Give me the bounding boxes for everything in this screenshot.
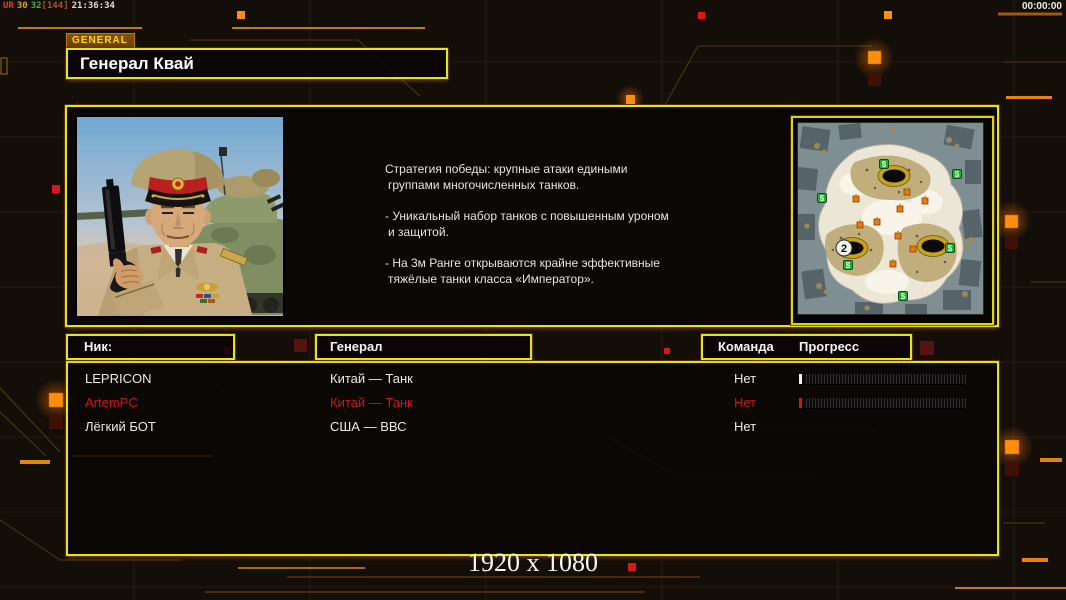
player-nick: Лёгкий БОТ xyxy=(85,419,156,434)
column-header-team: Команда xyxy=(718,336,774,358)
game-lobby-screen: UR3032[144]21:36:34 00:00:00 GENERAL Ген… xyxy=(0,0,1066,600)
loading-progress-bar xyxy=(799,373,966,385)
map-image: $$$$$$2 xyxy=(797,122,984,315)
description-line: и защитой. xyxy=(385,225,449,239)
player-roster-panel: LEPRICON Китай — Танк Нет ArtemPC Китай … xyxy=(66,361,999,556)
player-general: Китай — Танк xyxy=(330,395,413,410)
player-team: Нет xyxy=(734,419,756,434)
svg-text:$: $ xyxy=(882,160,887,169)
general-title-box: Генерал Квай xyxy=(66,48,448,79)
player-team: Нет xyxy=(734,395,756,410)
general-description: Стратегия победы: крупные атаки едиными … xyxy=(385,161,725,302)
map-preview: $$$$$$2 xyxy=(791,116,994,325)
general-portrait xyxy=(75,115,285,318)
progress-marker xyxy=(799,398,802,408)
svg-text:$: $ xyxy=(846,261,851,270)
svg-text:$: $ xyxy=(948,244,953,253)
general-tab-label: GENERAL xyxy=(66,33,135,48)
column-header-nick: Ник: xyxy=(66,334,235,360)
frametime-value: 32 xyxy=(31,1,42,11)
refresh-bracket: [144] xyxy=(42,1,69,11)
description-line: - Уникальный набор танков с повышенным у… xyxy=(385,209,669,223)
progress-ticks xyxy=(806,398,966,408)
fps-value: 30 xyxy=(17,1,28,11)
progress-marker xyxy=(799,374,802,384)
player-team: Нет xyxy=(734,371,756,386)
system-clock: 21:36:34 xyxy=(72,1,115,11)
fps-overlay: UR3032[144]21:36:34 xyxy=(3,1,118,11)
svg-text:$: $ xyxy=(901,292,906,301)
svg-text:$: $ xyxy=(955,170,960,179)
description-line: группами многочисленных танков. xyxy=(385,178,579,192)
player-nick: ArtemPC xyxy=(85,395,138,410)
player-general: Китай — Танк xyxy=(330,371,413,386)
loading-progress-bar xyxy=(799,397,966,409)
description-line: тяжёлые танки класса «Император». xyxy=(385,272,594,286)
player-row: ArtemPC Китай — Танк Нет xyxy=(68,390,997,414)
player-nick: LEPRICON xyxy=(85,371,151,386)
player-row: Лёгкий БОТ США — ВВС Нет xyxy=(68,414,997,438)
description-line: Стратегия победы: крупные атаки едиными xyxy=(385,162,627,176)
svg-text:2: 2 xyxy=(841,243,847,255)
match-timer: 00:00:00 xyxy=(1022,1,1062,12)
player-general: США — ВВС xyxy=(330,419,407,434)
general-info-panel: Стратегия победы: крупные атаки едиными … xyxy=(65,105,999,327)
svg-text:$: $ xyxy=(820,194,825,203)
description-line: - На 3м Ранге открываются крайне эффекти… xyxy=(385,256,660,270)
column-header-progress: Прогресс xyxy=(799,336,859,358)
progress-ticks xyxy=(806,374,966,384)
resolution-label: 1920 x 1080 xyxy=(0,548,1066,578)
player-row: LEPRICON Китай — Танк Нет xyxy=(68,366,997,390)
column-header-general: Генерал xyxy=(315,334,532,360)
column-header-team-progress: Команда Прогресс xyxy=(701,334,912,360)
fps-app-label: UR xyxy=(3,1,14,11)
